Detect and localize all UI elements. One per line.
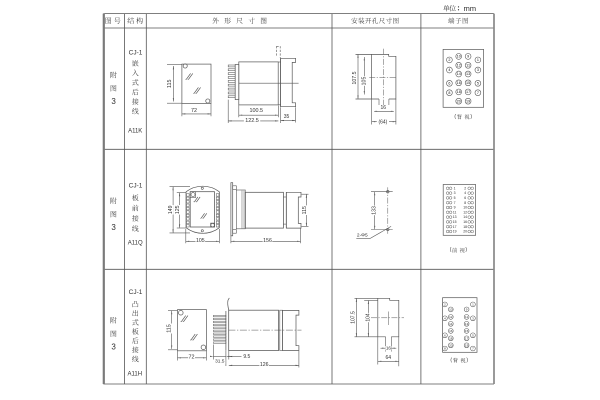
svg-text:CJ-1: CJ-1	[129, 182, 143, 189]
svg-text:18: 18	[463, 225, 467, 229]
svg-text:16: 16	[386, 346, 392, 351]
svg-text:5: 5	[477, 81, 479, 85]
svg-text:mm: mm	[463, 4, 476, 13]
svg-text:3: 3	[477, 68, 479, 72]
svg-text:15: 15	[453, 220, 457, 224]
svg-text:18: 18	[449, 336, 453, 340]
svg-text:8: 8	[448, 91, 450, 95]
svg-text:A11K: A11K	[128, 128, 142, 134]
svg-text:2: 2	[464, 186, 466, 190]
svg-text:20: 20	[457, 99, 461, 103]
svg-text:125: 125	[175, 205, 181, 214]
svg-text:4: 4	[464, 191, 466, 195]
svg-text:115: 115	[167, 324, 173, 333]
svg-text:11: 11	[465, 315, 468, 319]
svg-text:A11Q: A11Q	[128, 240, 143, 246]
svg-text:17: 17	[466, 90, 470, 94]
svg-text:100.5: 100.5	[250, 108, 264, 114]
svg-text:149: 149	[168, 205, 174, 214]
svg-text:12: 12	[463, 210, 467, 214]
svg-text:12: 12	[457, 63, 461, 67]
svg-text:15: 15	[465, 329, 469, 333]
svg-text:11: 11	[466, 63, 470, 67]
svg-text:64: 64	[386, 355, 392, 361]
svg-text:115: 115	[302, 206, 308, 214]
svg-text:A11H: A11H	[128, 372, 143, 378]
svg-text:CJ-1: CJ-1	[129, 49, 143, 56]
svg-text:115: 115	[167, 80, 173, 89]
svg-text:2-Φ5: 2-Φ5	[357, 233, 368, 239]
svg-text:20: 20	[463, 230, 467, 234]
svg-text:105: 105	[196, 238, 205, 244]
svg-text:CJ-1: CJ-1	[129, 289, 143, 296]
svg-text:16: 16	[457, 81, 461, 85]
svg-text:72: 72	[189, 355, 195, 361]
svg-text:16: 16	[463, 220, 467, 224]
svg-text:20: 20	[449, 343, 453, 347]
svg-text:16: 16	[449, 329, 453, 333]
svg-text:13: 13	[465, 322, 469, 326]
svg-text:14: 14	[457, 72, 461, 76]
svg-text:7: 7	[454, 201, 456, 205]
svg-text:5: 5	[454, 196, 456, 200]
svg-text:35: 35	[284, 114, 290, 120]
svg-text:126: 126	[260, 362, 269, 368]
svg-text:31.5: 31.5	[215, 358, 225, 364]
svg-text:9: 9	[454, 206, 456, 210]
svg-text:18: 18	[457, 90, 461, 94]
svg-text:3: 3	[111, 343, 116, 352]
svg-text:10: 10	[457, 55, 461, 59]
svg-text:16: 16	[381, 105, 387, 111]
svg-text:9: 9	[467, 55, 469, 59]
svg-text:72: 72	[191, 108, 197, 114]
svg-text:6: 6	[448, 81, 450, 85]
svg-text:104: 104	[365, 313, 371, 322]
svg-text:19: 19	[465, 343, 469, 347]
svg-text:105: 105	[361, 77, 367, 86]
svg-text:17: 17	[453, 225, 457, 229]
svg-text:19: 19	[453, 230, 457, 234]
svg-text:11: 11	[453, 210, 457, 214]
svg-text:133: 133	[372, 206, 378, 215]
svg-text:19: 19	[466, 99, 470, 103]
svg-text:2: 2	[448, 58, 450, 62]
svg-text:14: 14	[449, 322, 453, 326]
svg-text:14: 14	[463, 215, 467, 219]
svg-text:1: 1	[477, 58, 479, 62]
svg-text:13: 13	[466, 72, 470, 76]
svg-text:7: 7	[477, 91, 479, 95]
svg-text:156: 156	[263, 238, 272, 244]
svg-text:17: 17	[465, 336, 469, 340]
svg-text:8: 8	[464, 201, 466, 205]
svg-text:3: 3	[454, 191, 456, 195]
svg-text:10: 10	[449, 308, 453, 312]
svg-text:3: 3	[111, 97, 116, 106]
svg-text:15: 15	[466, 81, 470, 85]
svg-text:6: 6	[464, 196, 466, 200]
svg-text:3: 3	[111, 223, 116, 232]
svg-text:122.5: 122.5	[245, 118, 259, 124]
svg-text:107.5: 107.5	[351, 311, 357, 324]
svg-text:4: 4	[448, 68, 450, 72]
svg-text:107.5: 107.5	[352, 71, 358, 84]
svg-text:1: 1	[454, 186, 456, 190]
svg-text:12: 12	[449, 315, 453, 319]
svg-text:(64): (64)	[378, 120, 387, 126]
svg-text:13: 13	[453, 215, 457, 219]
svg-text:10: 10	[463, 206, 467, 210]
svg-text:9.5: 9.5	[243, 354, 250, 360]
